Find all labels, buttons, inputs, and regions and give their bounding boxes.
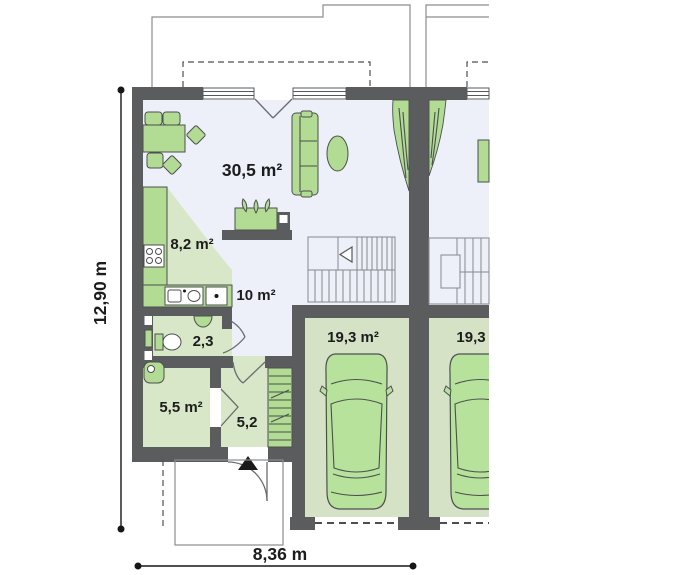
partition-utility-entry [210,427,221,447]
toilet-tank [155,334,163,350]
exterior-wall-top-neighbor [429,87,467,100]
plant-icon [254,200,258,213]
sofa-armrest [301,191,312,197]
dining-table [143,125,185,152]
porch-outline [163,460,283,545]
radiator [145,330,152,347]
garage-bottom-stub [398,517,440,530]
room-label-garage-right: 19,3 [456,329,485,346]
tv-cabinet [478,140,489,182]
upper-storey-outline [152,5,489,87]
stair-landing [441,255,460,288]
chair [145,112,162,125]
garage-side-wall [292,305,305,530]
chair [163,112,180,125]
sofa-armrest [301,111,312,117]
room-label-living: 30,5 m² [222,160,282,180]
entrance-arrow-icon [238,456,258,470]
room-label-garage-left: 19,3 m² [327,329,379,346]
window-icon [203,88,254,99]
coffee-table [327,136,348,171]
sink-icon [165,287,203,305]
duct-shaft [145,316,153,325]
dishwasher-icon [206,287,227,305]
duct-shaft [145,351,153,360]
dimension-label-width: 8,36 m [253,544,307,564]
exterior-wall-left [132,87,143,462]
fireplace-insert [280,215,288,223]
garage-bottom-stub [290,517,315,530]
utility-basin [144,362,164,383]
toilet-icon [163,334,181,350]
partition-wc-stub [222,316,232,329]
car [320,354,393,509]
kitchen-counter [143,187,167,285]
room-label-hall: 10 m² [236,287,275,304]
chair [147,153,163,168]
roof-overhang-dashed [183,62,489,87]
partition-utility-entry [210,368,221,388]
window-icon [293,88,346,99]
floor-plan-drawing: 30,5 m² 8,2 m² 10 m² 2,3 5,5 m² 5,2 19,3… [0,0,700,575]
hall-floor [232,316,292,357]
window-icon [467,88,489,99]
room-label-wc: 2,3 [193,333,214,350]
dimension-line-height [118,87,125,533]
room-label-utility: 5,5 m² [159,399,202,416]
entrance-door [228,456,267,501]
dimension-label-height: 12,90 m [90,261,110,325]
partition-hall-entry [265,356,292,368]
room-label-entry: 5,2 [237,414,258,431]
floor-plan-page: 30,5 m² 8,2 m² 10 m² 2,3 5,5 m² 5,2 19,3… [0,0,700,575]
exterior-wall-top [346,87,409,100]
wardrobe [268,368,292,447]
room-label-kitchen: 8,2 m² [170,236,213,253]
car [444,354,517,509]
sofa [292,111,318,197]
stove-icon [144,245,164,267]
half-wall-fireplace [222,230,292,240]
garage-front-wall [292,305,489,318]
